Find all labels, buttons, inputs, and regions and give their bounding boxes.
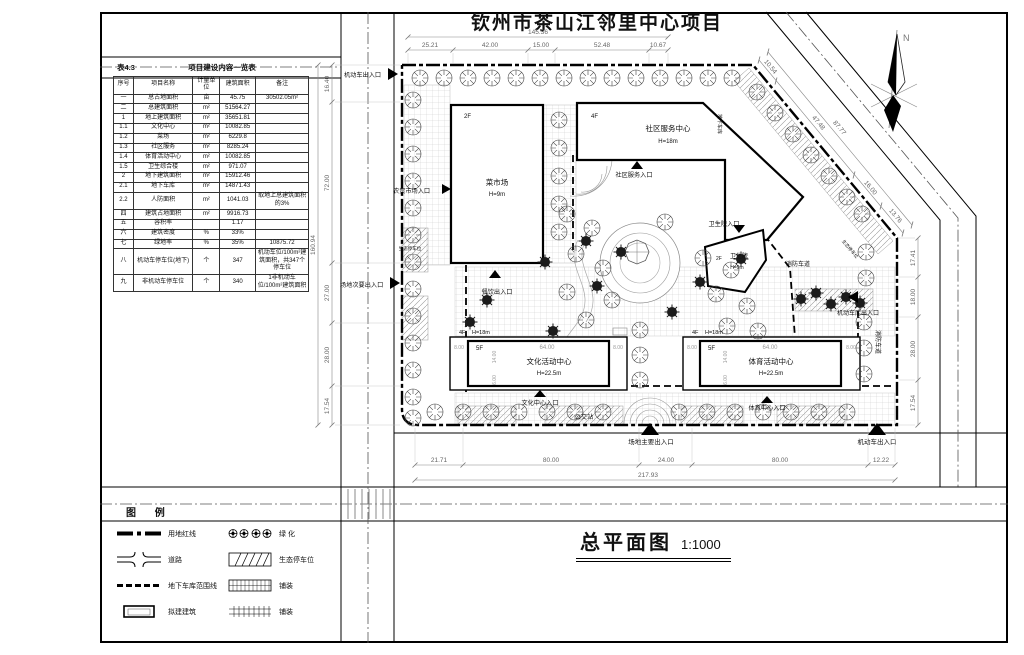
dim-label: 47.48 xyxy=(810,115,826,132)
entry-label: 场地次要出入口 xyxy=(340,281,383,289)
redline-symbol-icon xyxy=(116,525,162,542)
dim-label: 17.41 xyxy=(910,249,917,266)
clinic-name: 卫生院 xyxy=(730,252,748,260)
entry-label: 餐饮出入口 xyxy=(482,288,513,296)
legend: 图 例 用地红线 道路 地下车库范围线 拟建建筑 xyxy=(116,504,326,620)
dim-label: 28.00 xyxy=(910,340,917,357)
entry-label: 机动车库出入口 xyxy=(837,309,879,317)
table-row: 二总建筑面积m²51564.27 xyxy=(114,104,309,114)
fire-lane-label: 消防车道 xyxy=(786,260,810,268)
dim-label: 16.00 xyxy=(862,180,878,197)
legend-label: 铺装 xyxy=(279,581,293,591)
table-row: 八机动车停车位(地下)个347机动车位/100m²建筑面积，共347个停车位 xyxy=(114,249,309,274)
entry-label: 机动车出入口 xyxy=(858,437,897,446)
table-row: 九非机动车停车位个3401非机动车位/100m²建筑面积 xyxy=(114,274,309,292)
column-header: 项目名称 xyxy=(133,77,193,95)
legend-item: 铺装 xyxy=(227,603,314,620)
dim-label: 52.48 xyxy=(594,42,611,49)
legend-item: 绿 化 xyxy=(227,525,314,542)
culture-height: H=22.5m xyxy=(537,371,562,377)
dim-label: 8.00 xyxy=(687,345,697,351)
market-floors: 2F xyxy=(464,114,471,120)
dim-label: 25.21 xyxy=(422,42,439,49)
garage-ramp-label: 地下车库 xyxy=(716,114,723,134)
table-row: 2.2人防面积m²1041.03取地上总建筑面积的3% xyxy=(114,192,309,210)
entry-arrow-icon xyxy=(631,161,643,169)
entry-label: 卫生院入口 xyxy=(709,220,740,228)
legend-label: 地下车库范围线 xyxy=(168,581,217,591)
garage-line-symbol-icon xyxy=(116,577,162,594)
table-row: 七绿地率%35%10875.72 xyxy=(114,239,309,249)
dim-label: 17.54 xyxy=(910,394,917,411)
dim-label: 64.00 xyxy=(539,345,555,351)
dim-label: 12.22 xyxy=(873,457,890,464)
dim-label: 145.36 xyxy=(528,29,548,36)
north-arrow-icon: N xyxy=(871,30,917,132)
dim-label: 8.00 xyxy=(846,345,856,351)
north-label: N xyxy=(903,33,910,43)
entry-label: 体育中心入口 xyxy=(748,404,785,412)
dim-label: 10.67 xyxy=(650,42,667,49)
dim-label: 15.00 xyxy=(533,42,550,49)
entry-arrow-icon xyxy=(388,68,398,80)
table-caption: 表4.3 xyxy=(117,62,135,73)
community-height: H=18m xyxy=(658,139,678,145)
entry-label: 机动车出入口 xyxy=(344,71,381,79)
drawing-title: 总平面图 1:1000 xyxy=(576,526,731,562)
entry-label: 文化中心入口 xyxy=(521,399,558,407)
sports-floors: 5F xyxy=(708,346,715,352)
dim-label: 28.00 xyxy=(324,346,331,363)
project-table: 表4.3 项目建设内容一览表 序号 项目名称 计量单位 建筑面积 备注 一总占地… xyxy=(113,62,309,292)
dim-label: 6.00 xyxy=(723,375,729,385)
table-row: 1.4体育活动中心m²10082.85 xyxy=(114,153,309,163)
table-row: 1地上建筑面积m²35651.81 xyxy=(114,114,309,124)
culture-wing-floors: 4F xyxy=(459,330,466,336)
dim-label: 14.00 xyxy=(492,351,498,364)
eco-parking-label: 生态停车位 xyxy=(399,245,422,252)
dim-label: 17.54 xyxy=(324,397,331,414)
table-row: 四建筑占地面积m²9916.73 xyxy=(114,210,309,220)
table-title: 项目建设内容一览表 xyxy=(135,62,309,73)
dim-label: 80.00 xyxy=(543,457,560,464)
table-row: 1.1文化中心m²10082.85 xyxy=(114,123,309,133)
dim-label: 64.00 xyxy=(762,345,778,351)
proposed-building-symbol-icon xyxy=(116,603,162,620)
entry-label: 社区服务入口 xyxy=(615,171,652,179)
table-row: 六建筑密度%33% xyxy=(114,229,309,239)
drawing-scale: 1:1000 xyxy=(681,537,721,552)
drawing-name: 总平面图 xyxy=(580,526,672,555)
dim-label: 87.77 xyxy=(831,120,847,137)
dim-label: 14.00 xyxy=(723,351,729,364)
legend-label: 铺装 xyxy=(279,607,293,617)
dim-label: 21.71 xyxy=(431,457,448,464)
dim-label: 24.00 xyxy=(658,457,675,464)
paving-a-symbol-icon xyxy=(227,577,273,594)
fire-lane-label: 消防车道 xyxy=(874,330,882,354)
legend-label: 道路 xyxy=(168,555,182,565)
column-header: 序号 xyxy=(114,77,134,95)
entry-arrow-icon xyxy=(390,277,400,289)
legend-item: 生态停车位 xyxy=(227,551,314,568)
legend-item: 道路 xyxy=(116,551,217,568)
sports-name: 体育活动中心 xyxy=(749,356,794,366)
table-row: 2.1地下车库m²14871.43 xyxy=(114,182,309,192)
column-header: 计量单位 xyxy=(193,77,220,95)
dim-label: 80.00 xyxy=(772,457,789,464)
dim-label: 72.00 xyxy=(324,174,331,191)
dim-label: 27.00 xyxy=(324,284,331,301)
clinic-height: H=9m xyxy=(730,265,743,271)
legend-title: 图 例 xyxy=(126,504,326,519)
greening-symbol-icon xyxy=(227,525,273,542)
dim-label: 8.00 xyxy=(454,345,464,351)
dim-label: 18.00 xyxy=(910,288,917,305)
legend-label: 拟建建筑 xyxy=(168,607,196,617)
culture-floors: 5F xyxy=(476,346,483,352)
culture-wing-height: H=18m xyxy=(472,330,490,336)
legend-label: 绿 化 xyxy=(279,529,295,539)
clinic-floors: 2F xyxy=(716,256,722,262)
eco-parking-label: 生态停车位 xyxy=(840,238,860,260)
radial-paving xyxy=(570,158,612,196)
legend-item: 用地红线 xyxy=(116,525,217,542)
market-name: 菜市场 xyxy=(486,177,509,187)
legend-item: 铺装 xyxy=(227,577,314,594)
legend-item: 拟建建筑 xyxy=(116,603,217,620)
community-name: 社区服务中心 xyxy=(646,123,691,133)
table-header-row: 序号 项目名称 计量单位 建筑面积 备注 xyxy=(114,77,309,95)
dim-label: 16.40 xyxy=(324,75,331,92)
legend-item: 地下车库范围线 xyxy=(116,577,217,594)
column-header: 建筑面积 xyxy=(220,77,256,95)
sports-height: H=22.5m xyxy=(759,371,784,377)
table-row: 1.3社区服务m²8285.24 xyxy=(114,143,309,153)
dim-label: 6.00 xyxy=(492,375,498,385)
dim-label: 13.76 xyxy=(887,208,903,225)
legend-label: 用地红线 xyxy=(168,529,196,539)
dim-label: 8.00 xyxy=(613,345,623,351)
bus-stop-label: 公交站 xyxy=(575,413,594,421)
entry-label: 场地主要出入口 xyxy=(628,437,674,446)
table-row: 一总占地面积亩45.7530502.05m² xyxy=(114,94,309,104)
table-row: 2地下建筑面积m²15912.46 xyxy=(114,172,309,182)
dim-label: 160.94 xyxy=(310,235,317,255)
table-row: 1.5卫生综合楼m²971.07 xyxy=(114,163,309,173)
dim-label: 217.93 xyxy=(638,472,658,479)
entry-label: 农贸市场入口 xyxy=(393,187,430,195)
culture-name: 文化活动中心 xyxy=(527,356,572,366)
column-header: 备注 xyxy=(256,77,309,95)
dim-label: 42.00 xyxy=(482,42,499,49)
sports-wing-floors: 4F xyxy=(692,330,699,336)
table-row: 五容积率1.17 xyxy=(114,219,309,229)
community-floors: 4F xyxy=(591,114,598,120)
road-symbol-icon xyxy=(116,551,162,568)
market-height: H=9m xyxy=(489,192,505,198)
legend-label: 生态停车位 xyxy=(279,555,314,565)
sports-wing-height: H=18m xyxy=(705,330,723,336)
paving-b-symbol-icon xyxy=(227,603,273,620)
eco-parking-symbol-icon xyxy=(227,551,273,568)
table-row: 1.2菜场m²6229.8 xyxy=(114,133,309,143)
